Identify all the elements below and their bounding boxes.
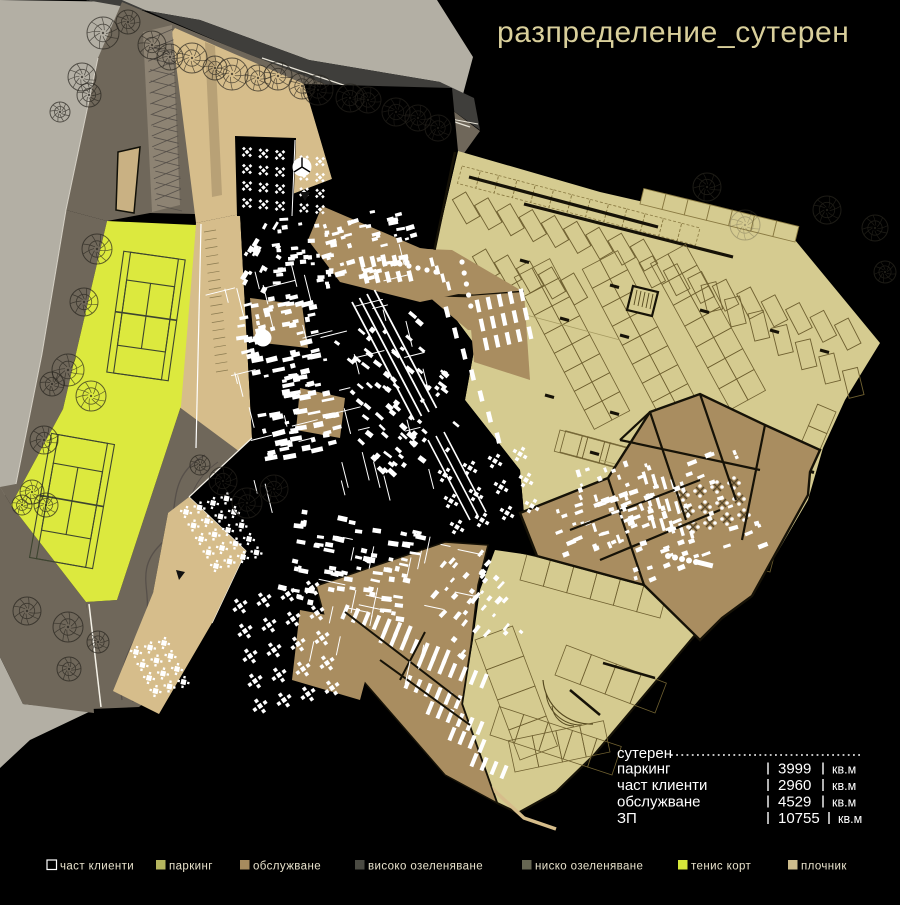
svg-text:3999: 3999 (778, 761, 811, 778)
svg-text:4529: 4529 (778, 794, 811, 811)
svg-text:обслужване: обслужване (253, 861, 321, 873)
svg-text:част клиенти: част клиенти (617, 777, 707, 794)
svg-text:разпределение_сутерен: разпределение_сутерен (497, 16, 849, 49)
svg-text:кв.м: кв.м (838, 812, 862, 826)
svg-text:сутерен: сутерен (617, 745, 672, 762)
svg-text:ниско озеленяване: ниско озеленяване (535, 861, 643, 873)
svg-text:кв.м: кв.м (832, 779, 856, 793)
svg-text:2960: 2960 (778, 777, 811, 794)
svg-text:кв.м: кв.м (832, 796, 856, 810)
svg-text:паркинг: паркинг (169, 861, 213, 873)
svg-text:високо озеленяване: високо озеленяване (368, 861, 483, 873)
svg-text:част клиенти: част клиенти (60, 861, 134, 873)
svg-text:10755: 10755 (778, 810, 820, 827)
svg-text:тенис корт: тенис корт (691, 861, 752, 873)
svg-text:кв.м: кв.м (832, 763, 856, 777)
svg-text:плочник: плочник (801, 861, 847, 873)
svg-text:обслужване: обслужване (617, 794, 701, 811)
svg-text:ЗП: ЗП (617, 810, 637, 827)
svg-text:паркинг: паркинг (617, 761, 671, 778)
